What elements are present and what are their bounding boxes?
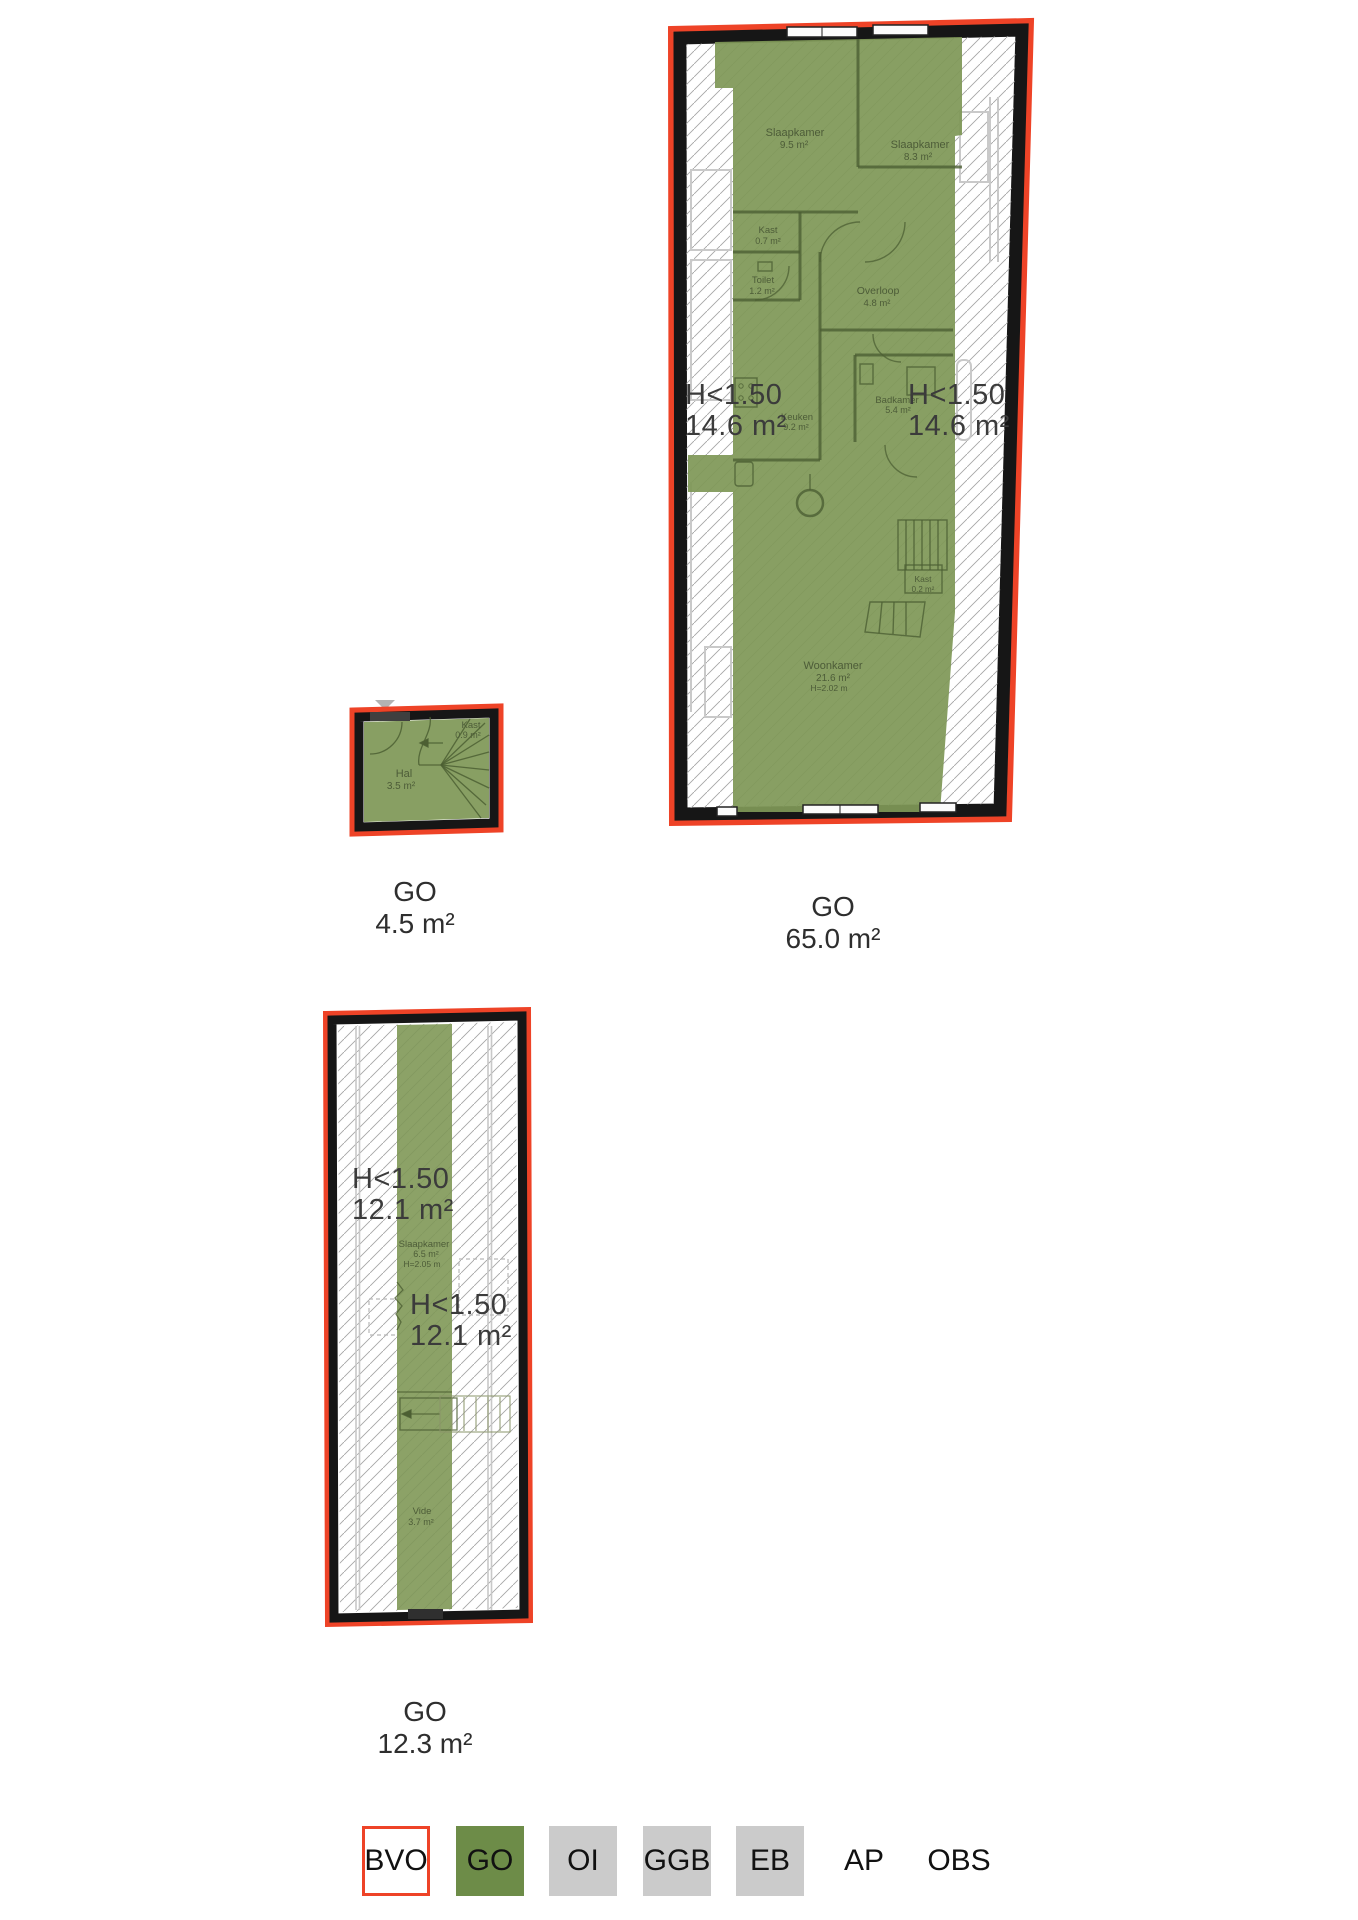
plan-caption-hall: GO 4.5 m² xyxy=(375,876,454,940)
floorplan-report-page: Slaapkamer 9.5 m² Slaapkamer 8.3 m² Kast… xyxy=(0,0,1358,1920)
height-restriction-line1: H<1.50 xyxy=(410,1290,512,1321)
room-area-slaapkamer2: 8.3 m² xyxy=(904,152,933,163)
caption-go-label: GO xyxy=(378,1696,473,1728)
room-area-slaapkamer1: 9.5 m² xyxy=(780,140,809,151)
room-label-toilet: Toilet xyxy=(752,275,775,286)
room-label-kast2: Kast xyxy=(914,574,932,584)
floorplan-hall: Kast 0.9 m² Hal 3.5 m² xyxy=(345,695,505,843)
room-area-keuken: 9.2 m² xyxy=(783,422,809,432)
plan-caption-first-floor: GO 65.0 m² xyxy=(786,891,881,955)
room-area-vide: 3.7 m² xyxy=(408,1517,434,1527)
room-label-kast1: Kast xyxy=(758,225,777,236)
height-restriction-line1: H<1.50 xyxy=(352,1164,454,1195)
room-label-slaapkamer1: Slaapkamer xyxy=(766,127,825,139)
height-restriction-label-upper: H<1.50 12.1 m² xyxy=(352,1164,454,1226)
room-area-kast: 0.9 m² xyxy=(455,730,481,740)
legend-item-go: GO xyxy=(456,1826,524,1896)
legend-label: GO xyxy=(467,1844,514,1878)
height-restriction-label-right: H<1.50 14.6 m² xyxy=(908,380,1010,442)
legend-item-ap: AP xyxy=(830,1826,898,1896)
room-area-toilet: 1.2 m² xyxy=(749,286,775,296)
legend-label: OBS xyxy=(927,1844,990,1878)
room-label-woonkamer: Woonkamer xyxy=(803,660,862,672)
room-height-slaapkamer: H=2.05 m xyxy=(403,1259,440,1269)
room-label-hal: Hal xyxy=(396,768,413,780)
legend-item-obs: OBS xyxy=(925,1826,993,1896)
room-area-kast2: 0.2 m² xyxy=(912,585,935,594)
height-restriction-line1: H<1.50 xyxy=(685,380,787,411)
legend-label: EB xyxy=(750,1844,790,1878)
window-opening xyxy=(408,1609,443,1619)
room-area-slaapkamer: 6.5 m² xyxy=(413,1249,439,1259)
room-area-hal: 3.5 m² xyxy=(387,781,416,792)
room-height-woonkamer: H=2.02 m xyxy=(810,683,847,693)
legend-label: OI xyxy=(567,1844,599,1878)
legend: BVO GO OI GGB EB AP OBS xyxy=(0,1826,1358,1896)
door-opening xyxy=(370,712,410,721)
room-label-overloop: Overloop xyxy=(857,285,900,297)
room-area-badkamer: 5.4 m² xyxy=(885,405,911,415)
legend-item-oi: OI xyxy=(549,1826,617,1896)
legend-item-bvo: BVO xyxy=(362,1826,430,1896)
height-restriction-label-lower: H<1.50 12.1 m² xyxy=(410,1290,512,1352)
height-restriction-label-left: H<1.50 14.6 m² xyxy=(685,380,787,442)
room-area-overloop: 4.8 m² xyxy=(864,298,891,309)
caption-go-value: 4.5 m² xyxy=(375,908,454,940)
room-label-vide: Vide xyxy=(413,1506,432,1517)
caption-go-label: GO xyxy=(786,891,881,923)
legend-label: GGB xyxy=(644,1844,711,1878)
caption-go-value: 65.0 m² xyxy=(786,923,881,955)
height-restriction-line2: 12.1 m² xyxy=(352,1195,454,1226)
height-restriction-line2: 14.6 m² xyxy=(908,411,1010,442)
legend-item-eb: EB xyxy=(736,1826,804,1896)
legend-item-ggb: GGB xyxy=(643,1826,711,1896)
room-area-kast1: 0.7 m² xyxy=(755,236,781,246)
caption-go-label: GO xyxy=(375,876,454,908)
caption-go-value: 12.3 m² xyxy=(378,1728,473,1760)
plan-caption-attic: GO 12.3 m² xyxy=(378,1696,473,1760)
height-restriction-line1: H<1.50 xyxy=(908,380,1010,411)
legend-label: AP xyxy=(844,1844,884,1878)
legend-label: BVO xyxy=(364,1844,427,1878)
height-restriction-line2: 14.6 m² xyxy=(685,411,787,442)
room-label-slaapkamer2: Slaapkamer xyxy=(891,139,950,151)
height-restriction-line2: 12.1 m² xyxy=(410,1321,512,1352)
